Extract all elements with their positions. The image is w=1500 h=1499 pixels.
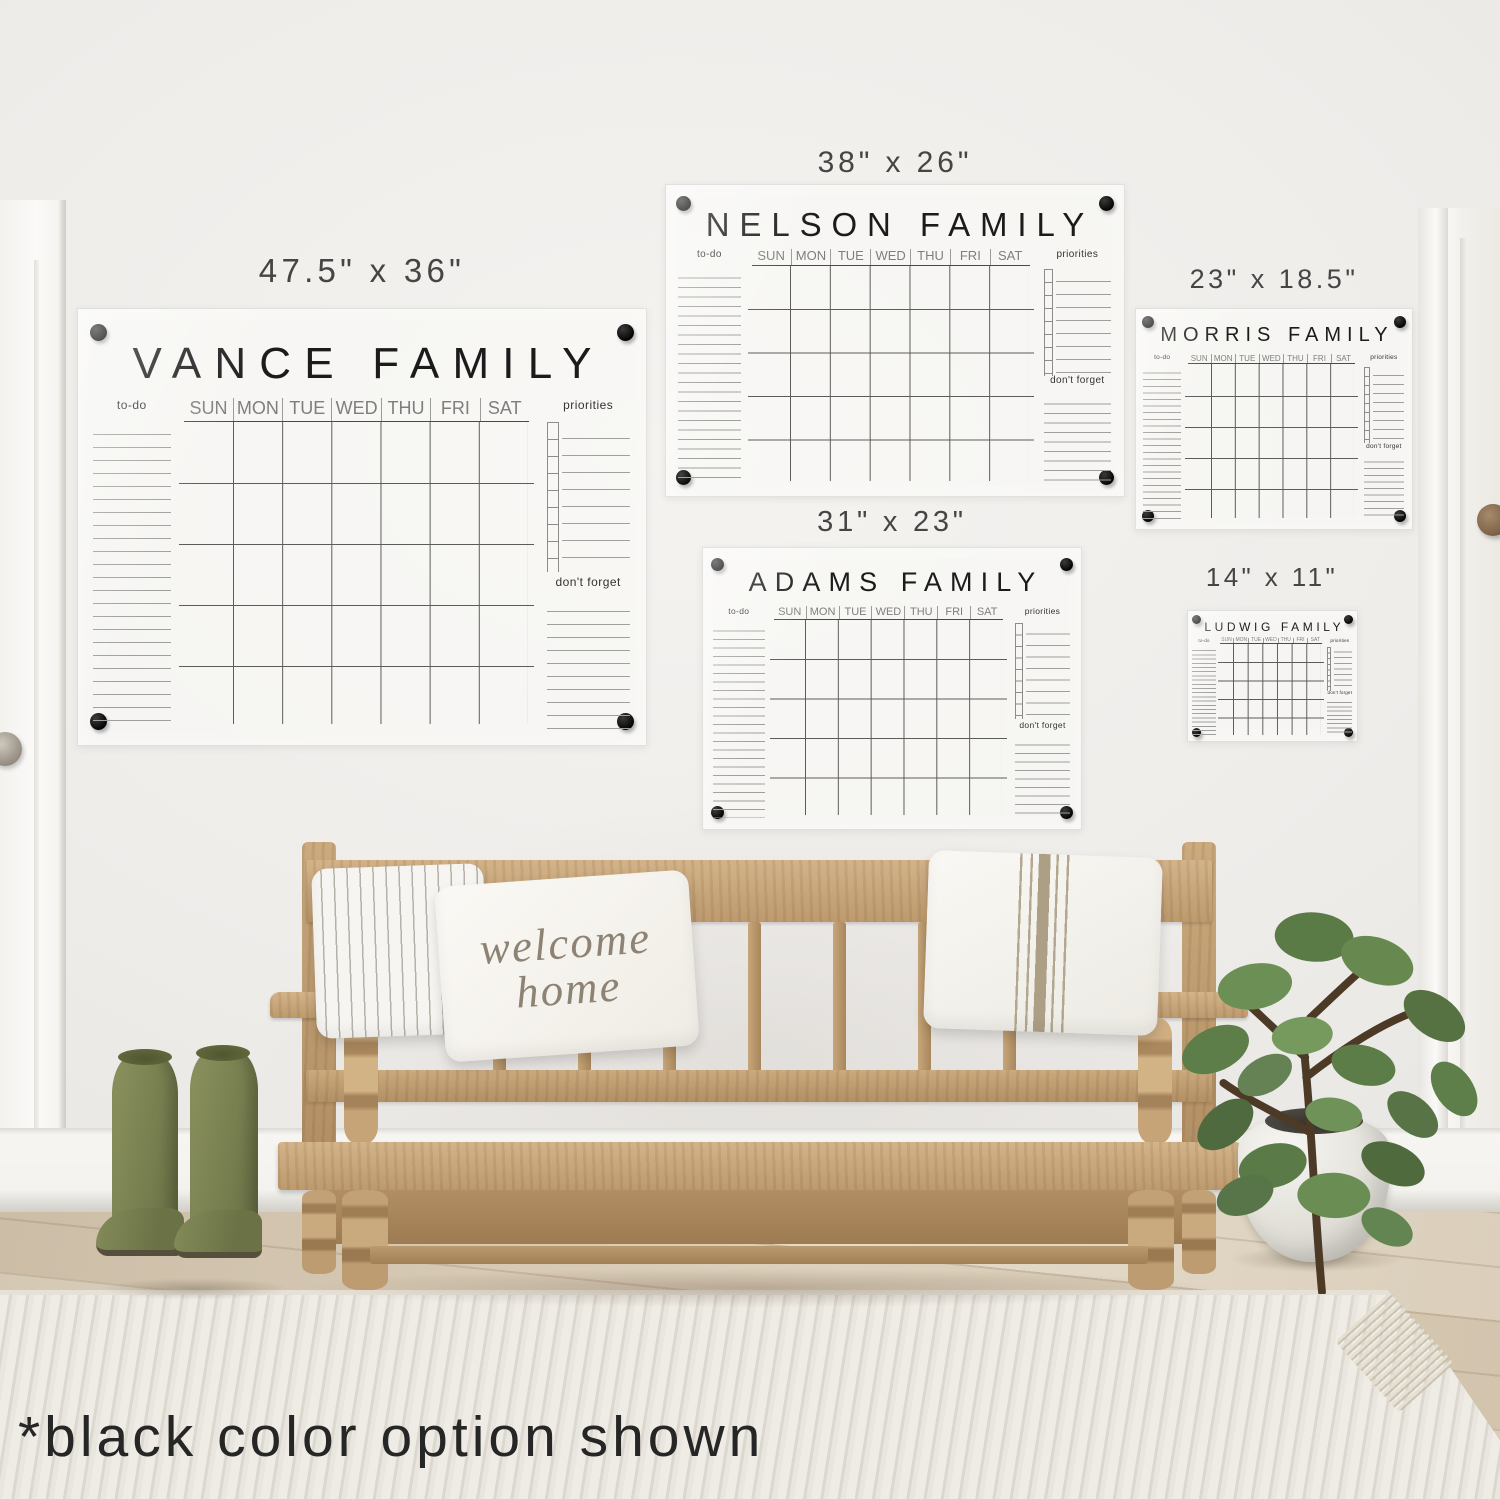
bench-spindle (833, 922, 846, 1072)
checkbox-ladder (1044, 269, 1053, 376)
checkbox-ladder (1015, 623, 1023, 720)
caption-text: *black color option shown (18, 1404, 918, 1470)
dont-forget-label: don't forget (1363, 443, 1405, 450)
rain-boot-left (112, 1052, 178, 1254)
fiddle-leaf-fig-plant (1152, 870, 1492, 1294)
todo-ruled-lines (1143, 367, 1181, 521)
day-header: FRI (938, 606, 971, 619)
day-header: MON (1212, 354, 1236, 363)
priorities-label: priorities (545, 398, 631, 412)
bench-leg (342, 1190, 388, 1290)
todo-section: to-do (1192, 638, 1215, 737)
month-grid-section: SUN MON TUE WED THU FRI SAT (774, 606, 1003, 821)
bench-seat (278, 1142, 1240, 1190)
priorities-lines (1373, 367, 1404, 443)
welcome-home-pillow: welcome home (434, 869, 700, 1062)
day-header-row: SUN MON TUE WED THU FRI SAT (752, 249, 1030, 266)
board-title: LUDWIG FAMILY (1188, 620, 1357, 634)
day-header: FRI (1308, 354, 1332, 363)
priorities-checklist (1364, 367, 1404, 443)
calendar-board-nelson: NELSON FAMILY to-do SUN MON TUE WED THU … (665, 184, 1125, 497)
priorities-label: priorities (1327, 638, 1353, 643)
day-header: TUE (1236, 354, 1260, 363)
day-header: SAT (1308, 638, 1322, 644)
day-header: THU (1279, 638, 1294, 644)
grid-horizontal-lines (1185, 396, 1357, 520)
bench-leg (302, 1190, 336, 1274)
board-content: to-do SUN MON TUE WED THU FRI SAT (713, 606, 1071, 821)
day-header: FRI (951, 249, 991, 265)
entryway-scene: 47.5" x 36" VANCE FAMILY to-do SUN MON T… (0, 0, 1500, 1499)
month-grid (752, 266, 1030, 483)
dont-forget-lines (1044, 395, 1111, 484)
calendar-board-morris: MORRIS FAMILY to-do SUN MON TUE WED THU … (1135, 308, 1413, 530)
size-label-morris: 23" x 18.5" (1135, 264, 1413, 295)
priorities-label: priorities (1014, 606, 1071, 616)
priorities-checklist (1044, 269, 1111, 376)
day-header: SUN (774, 606, 807, 619)
day-header: SUN (1220, 638, 1235, 644)
dont-forget-label: don't forget (1014, 720, 1071, 730)
board-content: to-do SUN MON TUE WED THU FRI SAT (678, 249, 1112, 487)
month-grid (1188, 364, 1355, 519)
todo-ruled-lines (713, 623, 765, 819)
todo-ruled-lines (678, 269, 741, 485)
todo-section: to-do (713, 606, 765, 821)
todo-label: to-do (1192, 638, 1215, 643)
day-header: SAT (1332, 354, 1355, 363)
rain-boot-right (190, 1048, 258, 1256)
day-header: SAT (971, 606, 1003, 619)
side-section: priorities don't forget (1363, 354, 1405, 522)
grid-horizontal-lines (179, 483, 534, 727)
day-header: FRI (431, 398, 480, 420)
priorities-checklist (1327, 647, 1352, 692)
size-label-adams: 31" x 23" (702, 506, 1082, 539)
board-content: to-do SUN MON TUE WED THU FRI SAT (1143, 354, 1405, 522)
calendar-board-vance: VANCE FAMILY to-do SUN MON TUE WED THU F… (77, 308, 647, 746)
board-title: NELSON FAMILY (666, 206, 1124, 244)
side-section: priorities don't forget (1014, 606, 1071, 821)
day-header: SAT (481, 398, 529, 420)
left-door-panel-groove (34, 260, 39, 1160)
grid-horizontal-lines (1218, 662, 1324, 735)
side-section: priorities don't forget (1043, 249, 1112, 487)
size-label-vance: 47.5" x 36" (77, 252, 647, 290)
dont-forget-lines (1015, 737, 1070, 819)
board-content: to-do SUN MON TUE WED THU FRI SAT (1192, 638, 1352, 737)
checkbox-ladder (1364, 367, 1370, 443)
day-header: WED (1260, 354, 1284, 363)
dont-forget-label: don't forget (545, 575, 631, 589)
pillow-text-home: home (514, 959, 623, 1018)
dont-forget-lines (1364, 456, 1404, 520)
day-header: MON (807, 606, 840, 619)
month-grid-section: SUN MON TUE WED THU FRI SAT (1188, 354, 1355, 522)
grid-horizontal-lines (748, 309, 1034, 483)
dont-forget-lines (547, 599, 630, 728)
day-header: TUE (831, 249, 871, 265)
month-grid-section: SUN MON TUE WED THU FRI SAT (1220, 638, 1323, 737)
day-header: THU (905, 606, 938, 619)
todo-section: to-do (93, 398, 171, 732)
checkbox-ladder (547, 422, 559, 572)
day-header: FRI (1294, 638, 1309, 644)
day-header: SAT (991, 249, 1030, 265)
priorities-lines (1056, 269, 1111, 376)
boots-shadow (100, 1278, 290, 1300)
bench-apron (318, 1190, 1200, 1244)
board-title: ADAMS FAMILY (703, 567, 1081, 598)
grid-horizontal-lines (770, 659, 1006, 817)
day-header-row: SUN MON TUE WED THU FRI SAT (774, 606, 1003, 620)
day-header: TUE (283, 398, 332, 420)
calendar-board-adams: ADAMS FAMILY to-do SUN MON TUE WED THU F… (702, 547, 1082, 830)
dont-forget-lines (1327, 699, 1352, 736)
bench-stretcher (370, 1246, 1148, 1264)
board-content: to-do SUN MON TUE WED THU FRI SAT (93, 398, 631, 732)
size-label-nelson: 38" x 26" (665, 146, 1125, 180)
priorities-label: priorities (1363, 354, 1405, 361)
todo-section: to-do (1143, 354, 1181, 522)
board-title: MORRIS FAMILY (1136, 324, 1412, 347)
day-header: THU (1284, 354, 1308, 363)
day-header: WED (1264, 638, 1279, 644)
day-header: MON (792, 249, 832, 265)
checkbox-ladder (1327, 647, 1331, 692)
priorities-lines (562, 422, 630, 572)
priorities-checklist (547, 422, 630, 572)
priorities-checklist (1015, 623, 1070, 720)
day-header: MON (1234, 638, 1249, 644)
day-header: WED (871, 249, 911, 265)
priorities-lines (1026, 623, 1070, 720)
day-header-row: SUN MON TUE WED THU FRI SAT (1188, 354, 1355, 364)
day-header: THU (382, 398, 431, 420)
todo-label: to-do (678, 249, 741, 260)
size-label-ludwig: 14" x 11" (1152, 562, 1392, 593)
day-header: THU (911, 249, 951, 265)
bench-spindle (748, 922, 761, 1072)
todo-label: to-do (1143, 354, 1181, 361)
day-header: MON (234, 398, 283, 420)
month-grid-section: SUN MON TUE WED THU FRI SAT (752, 249, 1030, 487)
todo-label: to-do (713, 606, 765, 616)
striped-pillow-right (923, 850, 1163, 1036)
todo-ruled-lines (93, 422, 171, 728)
day-header: WED (332, 398, 381, 420)
day-header: WED (872, 606, 905, 619)
dont-forget-label: don't forget (1327, 690, 1353, 695)
left-door (0, 200, 66, 1216)
day-header-row: SUN MON TUE WED THU FRI SAT (184, 398, 529, 421)
dont-forget-label: don't forget (1043, 375, 1112, 386)
day-header: SUN (1188, 354, 1212, 363)
day-header: SUN (752, 249, 792, 265)
priorities-lines (1334, 647, 1352, 692)
day-header: TUE (840, 606, 873, 619)
month-grid-section: SUN MON TUE WED THU FRI SAT (184, 398, 529, 732)
left-door-knob (0, 732, 22, 766)
day-header: SUN (184, 398, 233, 420)
bench-mid-rail (306, 1070, 1212, 1102)
side-section: priorities don't forget (1327, 638, 1353, 737)
calendar-board-ludwig: LUDWIG FAMILY to-do SUN MON TUE WED THU … (1187, 610, 1358, 742)
month-grid (774, 620, 1003, 817)
todo-label: to-do (93, 398, 171, 412)
todo-ruled-lines (1192, 647, 1215, 736)
day-header: TUE (1249, 638, 1264, 644)
board-title: VANCE FAMILY (78, 339, 646, 389)
todo-section: to-do (678, 249, 741, 487)
side-section: priorities don't forget (545, 398, 631, 732)
month-grid (1220, 644, 1323, 735)
priorities-label: priorities (1043, 249, 1112, 260)
month-grid (184, 422, 529, 727)
